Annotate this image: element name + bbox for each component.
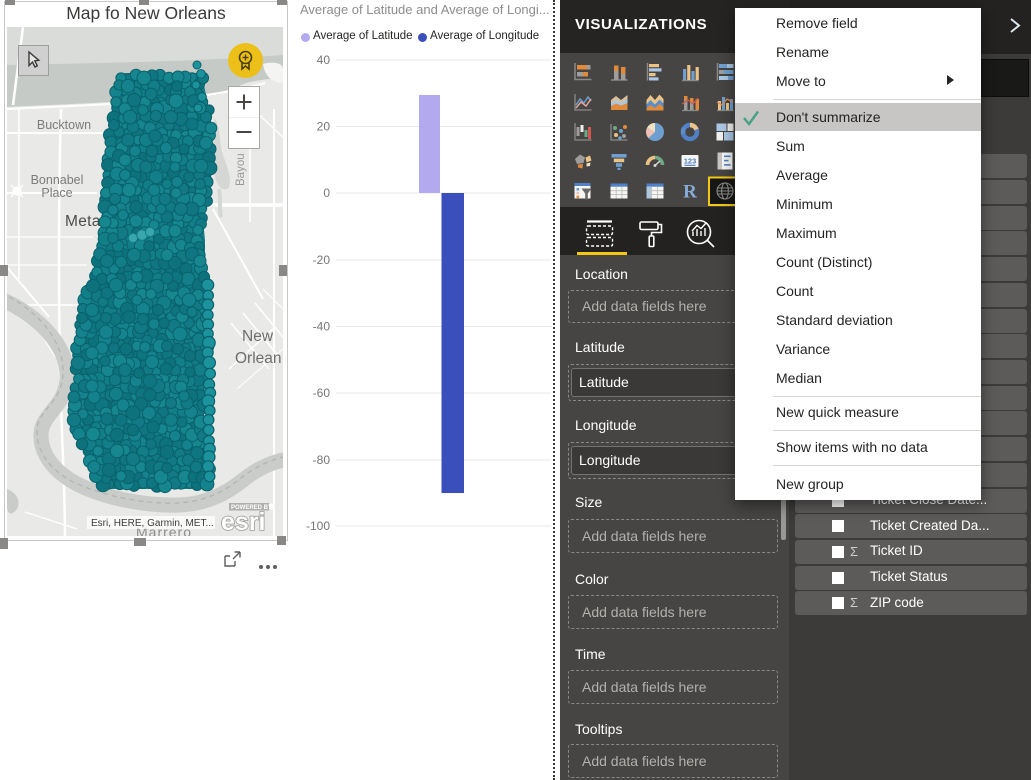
svg-text:Bayou: Bayou (235, 153, 247, 186)
svg-text:Esri, HERE, Garmin, MET...: Esri, HERE, Garmin, MET... (91, 518, 214, 529)
svg-text:20: 20 (317, 120, 331, 134)
svg-text:123: 123 (684, 157, 697, 166)
svg-text:Bonnabel: Bonnabel (31, 173, 84, 187)
svg-text:-80: -80 (313, 453, 331, 467)
svg-text:esri: esri (221, 508, 265, 536)
svg-text:Bucktown: Bucktown (37, 118, 91, 132)
svg-text:-100: -100 (306, 519, 330, 533)
svg-text:0: 0 (323, 186, 330, 200)
svg-text:Place: Place (41, 186, 72, 200)
svg-text:Orlean: Orlean (235, 350, 282, 367)
svg-text:40: 40 (317, 53, 331, 67)
svg-text:-60: -60 (313, 386, 331, 400)
svg-text:New: New (242, 328, 274, 345)
svg-text:-40: -40 (313, 320, 331, 334)
svg-text:R: R (683, 182, 697, 203)
svg-text:-20: -20 (313, 253, 331, 267)
